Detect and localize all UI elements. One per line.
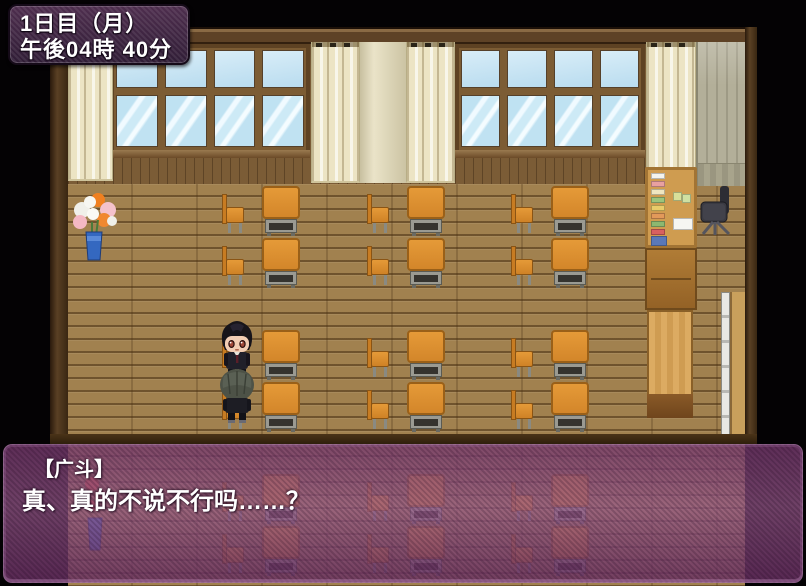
student-desk [407, 382, 445, 432]
curtain-pair-left [311, 42, 360, 183]
character-back-view[interactable] [218, 368, 256, 429]
office-chair [697, 184, 737, 238]
student-desk [407, 186, 445, 236]
student-chair [222, 246, 246, 288]
teacher-table [647, 310, 693, 418]
flower-vase [68, 188, 120, 264]
student-desk [262, 238, 300, 288]
storage-cabinet [645, 248, 697, 310]
student-desk [551, 330, 589, 380]
student-chair [511, 194, 535, 236]
student-chair [367, 338, 391, 380]
student-desk [551, 238, 589, 288]
dialog-text: 真、真的不说不行吗……？ [22, 486, 802, 518]
room-bottom-edge [50, 434, 757, 444]
bulletin-board [645, 167, 697, 248]
left-wall-edge [50, 27, 68, 444]
right-wall-edge [745, 27, 757, 444]
dialog-speaker-name: 【广斗】 [34, 457, 802, 483]
sliding-door [721, 292, 745, 443]
student-chair [367, 246, 391, 288]
student-chair [367, 390, 391, 432]
student-desk [262, 330, 300, 380]
student-chair [367, 194, 391, 236]
student-desk [551, 382, 589, 432]
hud-time-label: 午後04時 40分 [20, 37, 188, 63]
hud-day-label: 1日目（月） [20, 11, 188, 37]
curtain-center-panel [360, 42, 406, 183]
student-desk [551, 186, 589, 236]
hud-time-box: 1日目（月） 午後04時 40分 [8, 4, 190, 65]
dialog-box[interactable]: 【广斗】 真、真的不说不行吗……？ [3, 444, 803, 583]
student-desk [262, 186, 300, 236]
curtain-pair-right [406, 42, 455, 183]
student-desk [262, 382, 300, 432]
student-chair [222, 194, 246, 236]
student-chair [511, 338, 535, 380]
window-group-right [455, 44, 645, 154]
student-desk [407, 330, 445, 380]
student-desk [407, 238, 445, 288]
front-wall-panel [696, 42, 745, 186]
curtain-far-right [646, 42, 696, 171]
student-chair [511, 246, 535, 288]
game-screen: 1日目（月） 午後04時 40分 【广斗】 真、真的不说不行吗……？ [0, 0, 806, 586]
student-chair [511, 390, 535, 432]
